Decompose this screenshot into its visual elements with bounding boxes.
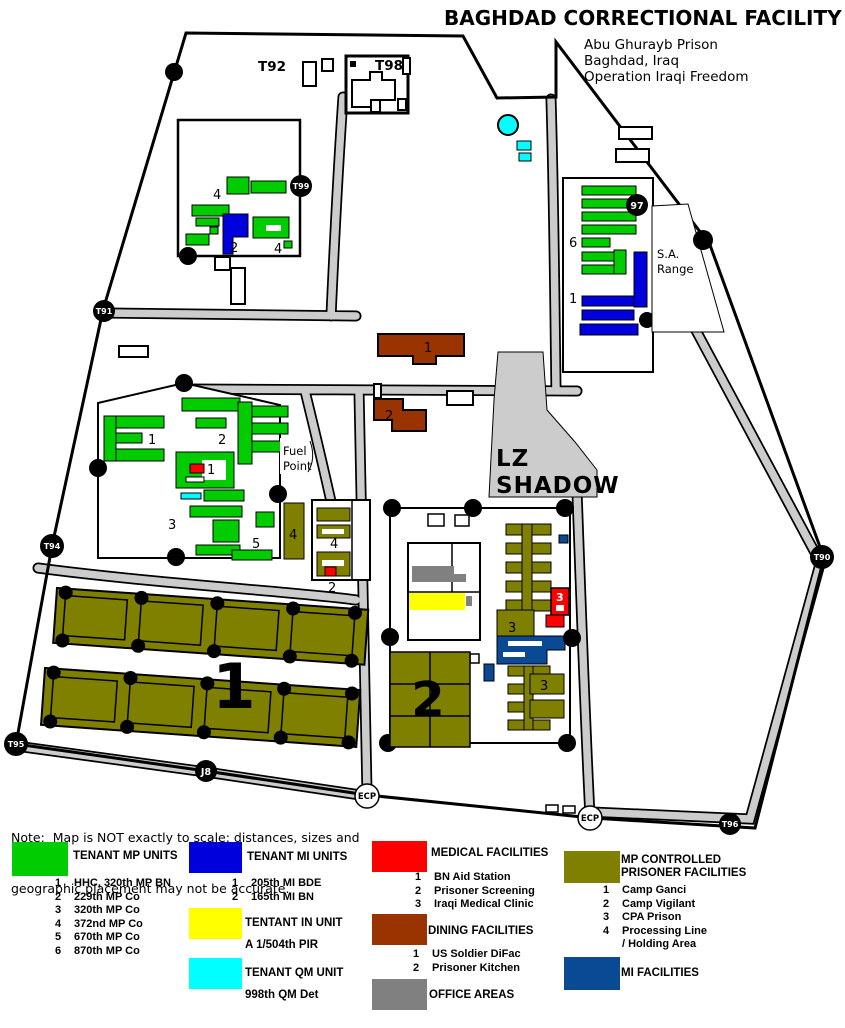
legend-items-prisoner: 1Camp Ganci 2Camp Vigilant 3CPA Prison 4… (603, 884, 707, 952)
legend-item: 1Camp Ganci (603, 884, 707, 898)
camp-ganci: 1 (41, 585, 369, 750)
t92-label: T92 (258, 59, 286, 75)
marker-j8: J8 (195, 760, 217, 782)
legend-swatch-dining (372, 914, 427, 945)
legend-swatch-mp-units (12, 842, 68, 876)
t92-t98-area: T92 T98 (258, 56, 410, 113)
ganci-number: 1 (212, 650, 255, 723)
legend-item: 1205th MI BDE (232, 877, 321, 891)
camp-aid-number: 1 (207, 463, 215, 478)
guard-tower-dot (89, 459, 107, 477)
svg-text:T96: T96 (722, 820, 739, 829)
svg-text:ECP: ECP (358, 792, 376, 802)
marker-t95: T95 (4, 732, 28, 756)
ne-mp-number: 6 (569, 236, 577, 251)
legend-title-mp-units: TENANT MP UNITS (73, 850, 178, 862)
legend-title-qm-unit: TENANT QM UNIT (245, 967, 343, 979)
legend-title-office: OFFICE AREAS (429, 989, 514, 1001)
nw-south-building (231, 268, 245, 304)
legend-item: 6870th MP Co (55, 945, 171, 959)
ne-small-building2 (616, 149, 649, 162)
guard-tower-dot (269, 485, 287, 503)
ne-mi-number: 1 (569, 292, 577, 307)
legend-detail-in-unit: A 1/504th PIR (245, 939, 318, 951)
cpa-small-building3 (470, 654, 479, 663)
legend-item: 1BN Aid Station (415, 871, 535, 885)
nw-upper-number: 4 (213, 188, 221, 203)
nw-outbuilding (215, 257, 230, 270)
guard-tower-dot (167, 548, 185, 566)
legend-item: 4Processing Line (603, 925, 707, 939)
t98-tab-building (371, 100, 380, 112)
camp-compound: 1 2 1 3 5 4 (89, 374, 304, 566)
legend-items-dining: 1US Soldier DiFac 2Prisoner Kitchen (413, 948, 521, 975)
marker-ecp-south: ECP (578, 806, 602, 830)
subtitle-line3: Operation Iraqi Freedom (584, 69, 749, 85)
facility-map: LZ SHADOW 4 2 4 T92 (0, 0, 845, 845)
nw-building-slot (266, 225, 281, 231)
svg-text:T90: T90 (814, 553, 831, 562)
legend-item: 1US Soldier DiFac (413, 948, 521, 962)
svg-text:T94: T94 (44, 542, 61, 551)
qm-small-building2 (519, 153, 531, 161)
t92-small-building (322, 59, 333, 71)
svg-text:ECP: ECP (581, 814, 599, 824)
kitchen-number: 2 (385, 409, 393, 424)
legend-title-in-unit: TENTANT IN UNIT (245, 917, 343, 929)
fuel-point: Fuel Point (280, 438, 313, 474)
subtitle-line2: Baghdad, Iraq (584, 53, 749, 69)
legend-item: 3Iraqi Medical Clinic (415, 898, 535, 912)
difac-number: 1 (424, 341, 432, 356)
camp-number-5: 5 (252, 537, 260, 552)
us-soldier-difac (378, 334, 464, 364)
bn-aid-station (190, 464, 204, 473)
legend-swatch-qm-unit (189, 958, 242, 989)
legend-item: 3CPA Prison (603, 911, 707, 925)
map-page: LZ SHADOW 4 2 4 T92 (0, 0, 845, 1028)
legend-title-mi-fac: MI FACILITIES (621, 967, 699, 979)
processing-slot2 (322, 560, 344, 566)
water-tank-circle (498, 115, 518, 135)
processing-slot (322, 529, 344, 534)
cpa-compound: 3 3 3 (379, 499, 581, 752)
ne-small-building1 (619, 127, 652, 139)
kitchen-outbuilding (447, 391, 473, 405)
legend-items-medical: 1BN Aid Station 2Prisoner Screening 3Ira… (415, 871, 535, 912)
camp-number-1: 1 (148, 433, 156, 448)
legend-item: / Holding Area (603, 938, 707, 952)
cpa-small-building1 (455, 515, 469, 526)
legend-swatch-in-unit (189, 908, 242, 939)
marker-t94: T94 (40, 534, 64, 558)
screening-number: 2 (328, 581, 336, 596)
legend-swatch-office (372, 979, 427, 1010)
t98-label: T98 (375, 58, 403, 74)
svg-text:T91: T91 (96, 307, 113, 316)
legend-swatch-prisoner (564, 851, 620, 883)
sa-range: S.A. Range (652, 204, 724, 332)
marker-97: 97 (626, 194, 648, 216)
legend-title-mi-units: TENANT MI UNITS (247, 851, 347, 863)
t98-tab-building2 (398, 99, 406, 110)
legend-item: 2Prisoner Kitchen (413, 962, 521, 976)
legend-swatch-mi-units (189, 842, 242, 873)
camp-vigilant: 2 (390, 652, 470, 747)
t98-tower (350, 61, 356, 67)
south-small-building2 (563, 806, 575, 813)
subtitle-line1: Abu Ghurayb Prison (584, 37, 749, 53)
page-title: BAGHDAD CORRECTIONAL FACILITY (444, 6, 842, 30)
svg-text:97: 97 (630, 201, 643, 212)
fuel-point-label-line2: Point (283, 459, 312, 473)
t92-building (303, 62, 316, 86)
legend-swatch-mi-fac (564, 957, 620, 990)
guard-tower-dot (179, 247, 197, 265)
marker-t91: T91 (93, 300, 115, 322)
pir-unit-area (409, 593, 465, 610)
legend-item: 2Prisoner Screening (415, 885, 535, 899)
legend-items-mp-units: 1HHC, 320th MP BN 2229th MP Co 3320th MP… (55, 877, 171, 958)
nw-compound: 4 2 4 (178, 120, 300, 304)
lz-label-line1: LZ (496, 446, 529, 472)
legend-item: 3320th MP Co (55, 904, 171, 918)
sa-range-label-line1: S.A. (657, 247, 679, 261)
processing-number: 4 (330, 537, 338, 552)
legend-title-prisoner-line2: PRISONER FACILITIES (621, 867, 746, 879)
cpa-lower-number: 3 (540, 679, 548, 694)
qm-det-building (181, 493, 201, 499)
camp-number-3: 3 (168, 518, 176, 533)
cpa-upper-number: 3 (508, 621, 516, 636)
legend-detail-qm-unit: 998th QM Det (245, 989, 319, 1001)
prisoner-screening (325, 567, 336, 576)
legend-item: 2229th MP Co (55, 891, 171, 905)
svg-text:T95: T95 (8, 740, 25, 749)
kitchen-small-building (374, 384, 381, 398)
marker-t90: T90 (810, 545, 834, 569)
legend-title-prisoner-line1: MP CONTROLLED (621, 854, 721, 866)
qm-small-building1 (517, 141, 531, 150)
legend-swatch-medical (372, 841, 427, 872)
legend-item: 5670th MP Co (55, 931, 171, 945)
prisoner-kitchen (374, 399, 426, 431)
camp-center-slot (186, 477, 204, 482)
t98-tab-building3 (403, 58, 410, 74)
camp-proc-number: 4 (289, 528, 297, 543)
ganci-row2 (41, 665, 361, 750)
office-notch (466, 596, 472, 606)
sa-range-label-line2: Range (657, 262, 693, 276)
marker-t99: T99 (290, 175, 312, 197)
west-small-building (119, 346, 148, 357)
svg-text:T99: T99 (293, 182, 310, 191)
fuel-point-label-line1: Fuel (283, 444, 307, 458)
legend-title-dining: DINING FACILITIES (428, 925, 533, 937)
clinic-number: 3 (556, 591, 564, 604)
lz-label-line2: SHADOW (496, 473, 620, 499)
legend-item: 2165th MI BN (232, 891, 321, 905)
legend-title-medical: MEDICAL FACILITIES (431, 847, 548, 859)
guard-tower-dot (175, 374, 193, 392)
vigilant-number: 2 (411, 672, 444, 728)
legend-items-mi-units: 1205th MI BDE 2165th MI BN (232, 877, 321, 904)
south-small-building1 (546, 805, 558, 812)
legend-item: 2Camp Vigilant (603, 898, 707, 912)
legend-item: 1HHC, 320th MP BN (55, 877, 171, 891)
cpa-small-building2 (428, 514, 444, 526)
nw-right-number: 4 (274, 242, 282, 257)
camp-number-2: 2 (218, 433, 226, 448)
page-subtitle: Abu Ghurayb Prison Baghdad, Iraq Operati… (584, 37, 749, 85)
svg-text:J8: J8 (200, 767, 212, 778)
legend-item: 4372nd MP Co (55, 918, 171, 932)
dining-buildings: 1 2 (374, 334, 473, 431)
nw-mi-number: 2 (230, 241, 238, 256)
marker-t96: T96 (719, 813, 741, 835)
